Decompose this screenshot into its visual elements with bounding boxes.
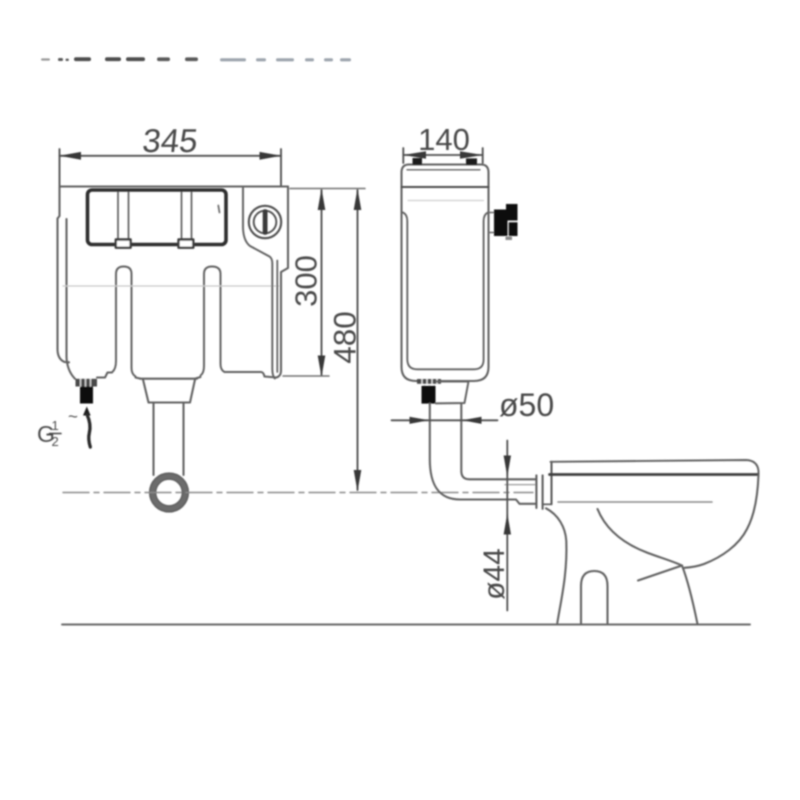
svg-text:ø44: ø44 (478, 548, 511, 600)
svg-text:2: 2 (52, 434, 59, 449)
svg-text:300: 300 (289, 255, 324, 307)
svg-text:ø50: ø50 (499, 387, 554, 423)
svg-text:~: ~ (68, 407, 78, 426)
svg-text:480: 480 (327, 311, 363, 364)
svg-text:1: 1 (52, 418, 59, 433)
svg-text:345: 345 (141, 123, 200, 160)
